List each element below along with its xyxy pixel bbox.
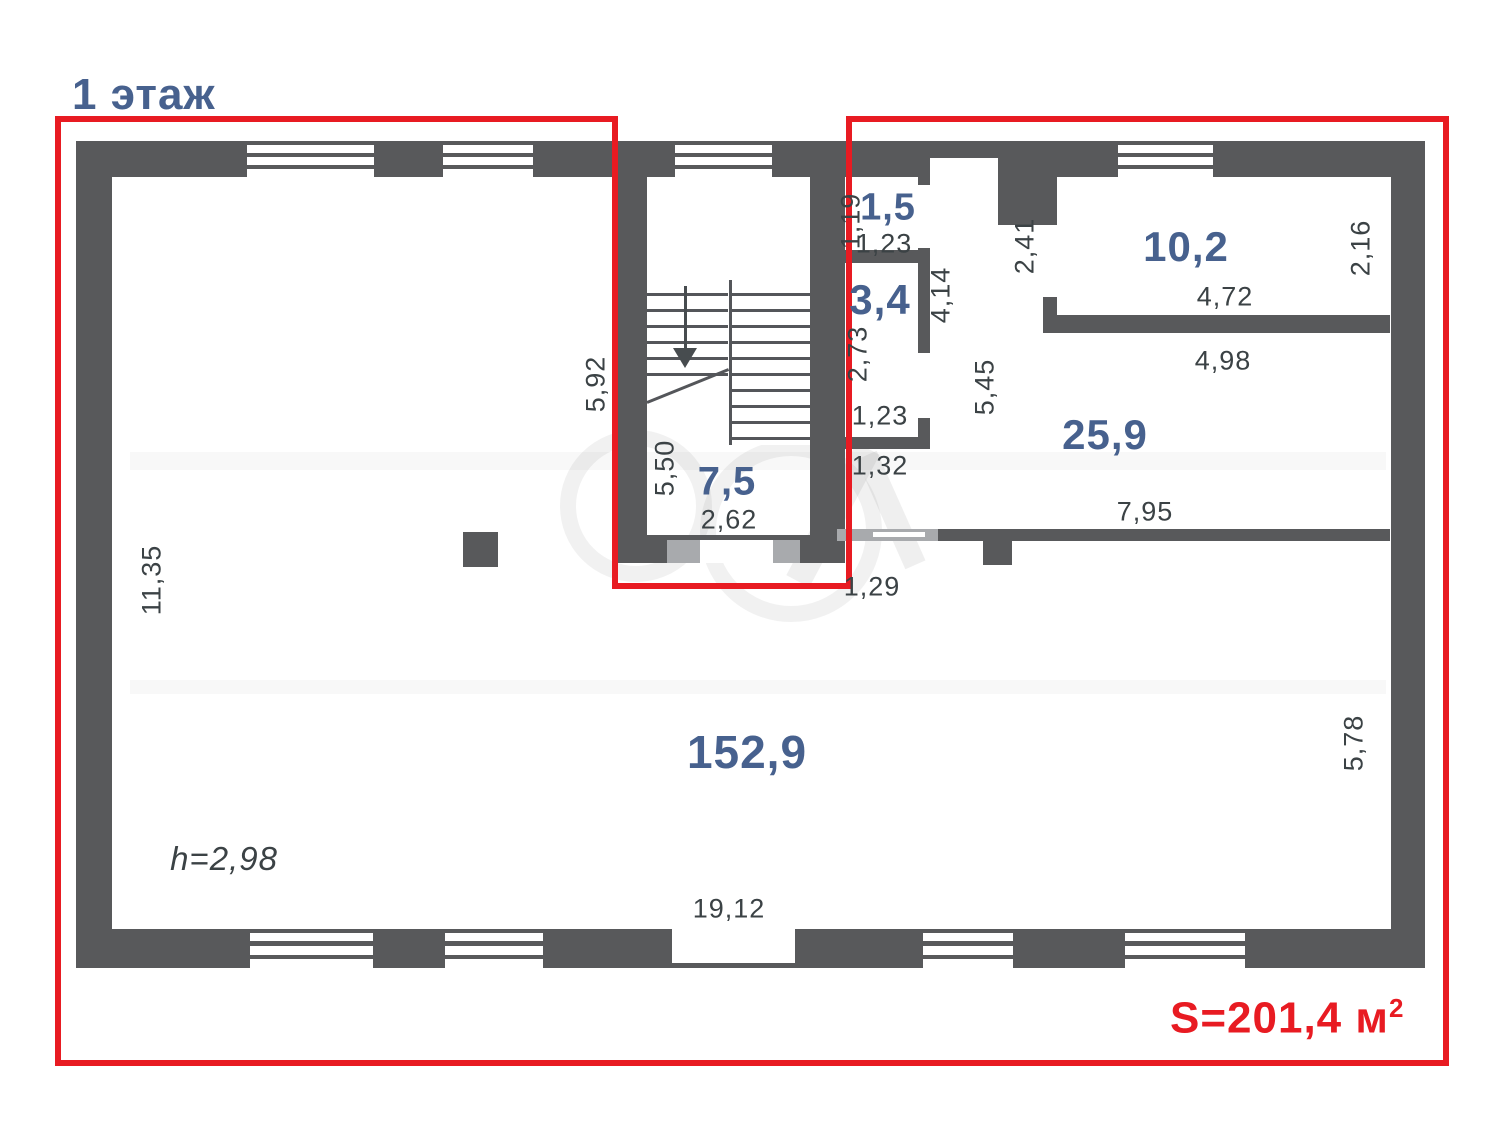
room-area-label: 3,4 (849, 276, 910, 324)
dimension-label: 2,16 (1346, 220, 1377, 277)
area-boundary (55, 116, 61, 1066)
dimension-label: 1,29 (844, 572, 901, 603)
outer-wall-left (76, 141, 112, 968)
dimension-label: 2,73 (843, 326, 874, 383)
dimension-label: 2,41 (1010, 218, 1041, 275)
dimension-label: 5,50 (650, 440, 681, 497)
dimension-label: 1,23 (852, 401, 909, 432)
door-threshold (773, 540, 800, 563)
dimension-label: h=2,98 (170, 840, 278, 878)
dimension-label: 5,78 (1339, 715, 1370, 772)
total-area-label: S=201,4 м2 (1170, 993, 1404, 1044)
window (247, 145, 374, 177)
window (675, 145, 772, 177)
dimension-label: 4,72 (1197, 282, 1254, 313)
partition-wall (998, 141, 1057, 225)
partition-wall (1043, 315, 1390, 333)
dimension-label: 1,32 (852, 451, 909, 482)
window (443, 145, 533, 177)
stairwell-door-opening (700, 540, 773, 563)
dimension-label: 4,14 (926, 267, 957, 324)
outer-wall-right (1391, 141, 1425, 968)
entrance-door-opening (672, 929, 795, 963)
watermark (130, 680, 1386, 694)
room-area-label: 152,9 (687, 725, 807, 779)
opening (930, 158, 998, 177)
window (923, 933, 1013, 968)
room-area-label: 25,9 (1062, 411, 1148, 459)
window (445, 933, 543, 968)
dimension-label: 4,98 (1195, 346, 1252, 377)
dimension-label: 11,35 (137, 545, 168, 616)
dimension-label: 5,92 (581, 356, 612, 413)
window (1125, 933, 1245, 968)
page-title: 1 этаж (72, 70, 216, 120)
area-boundary (1443, 116, 1449, 1066)
dimension-label: 19,12 (693, 894, 766, 925)
dimension-label: 5,45 (970, 359, 1001, 416)
window (1118, 145, 1213, 177)
dimension-label: 2,62 (701, 505, 758, 536)
door-threshold (667, 540, 700, 563)
stairwell-wall-left (618, 177, 647, 563)
area-boundary-notch (612, 116, 618, 589)
room-area-label: 10,2 (1143, 223, 1229, 271)
opening (873, 532, 925, 537)
area-boundary-notch (612, 583, 852, 589)
stairs-down-arrow-icon (673, 348, 697, 368)
floor-plan: 1 этаж S=201,4 м2 1,53,410,225,97,5152,9… (0, 0, 1500, 1125)
stair-flight-right (732, 280, 810, 445)
stairs-down-arrow-icon (684, 286, 687, 350)
room-area-label: 7,5 (698, 460, 757, 505)
pillar (983, 541, 1012, 565)
room-area-label: 1,5 (860, 187, 916, 230)
dimension-label: 7,95 (1117, 497, 1174, 528)
partition-wall (938, 529, 1390, 541)
dimension-label: 1,23 (856, 229, 913, 260)
window (250, 933, 373, 968)
partition-wall (918, 177, 930, 185)
area-boundary (846, 116, 1449, 122)
stair-divider (729, 280, 732, 445)
area-boundary (55, 1060, 1449, 1066)
column (463, 532, 498, 567)
